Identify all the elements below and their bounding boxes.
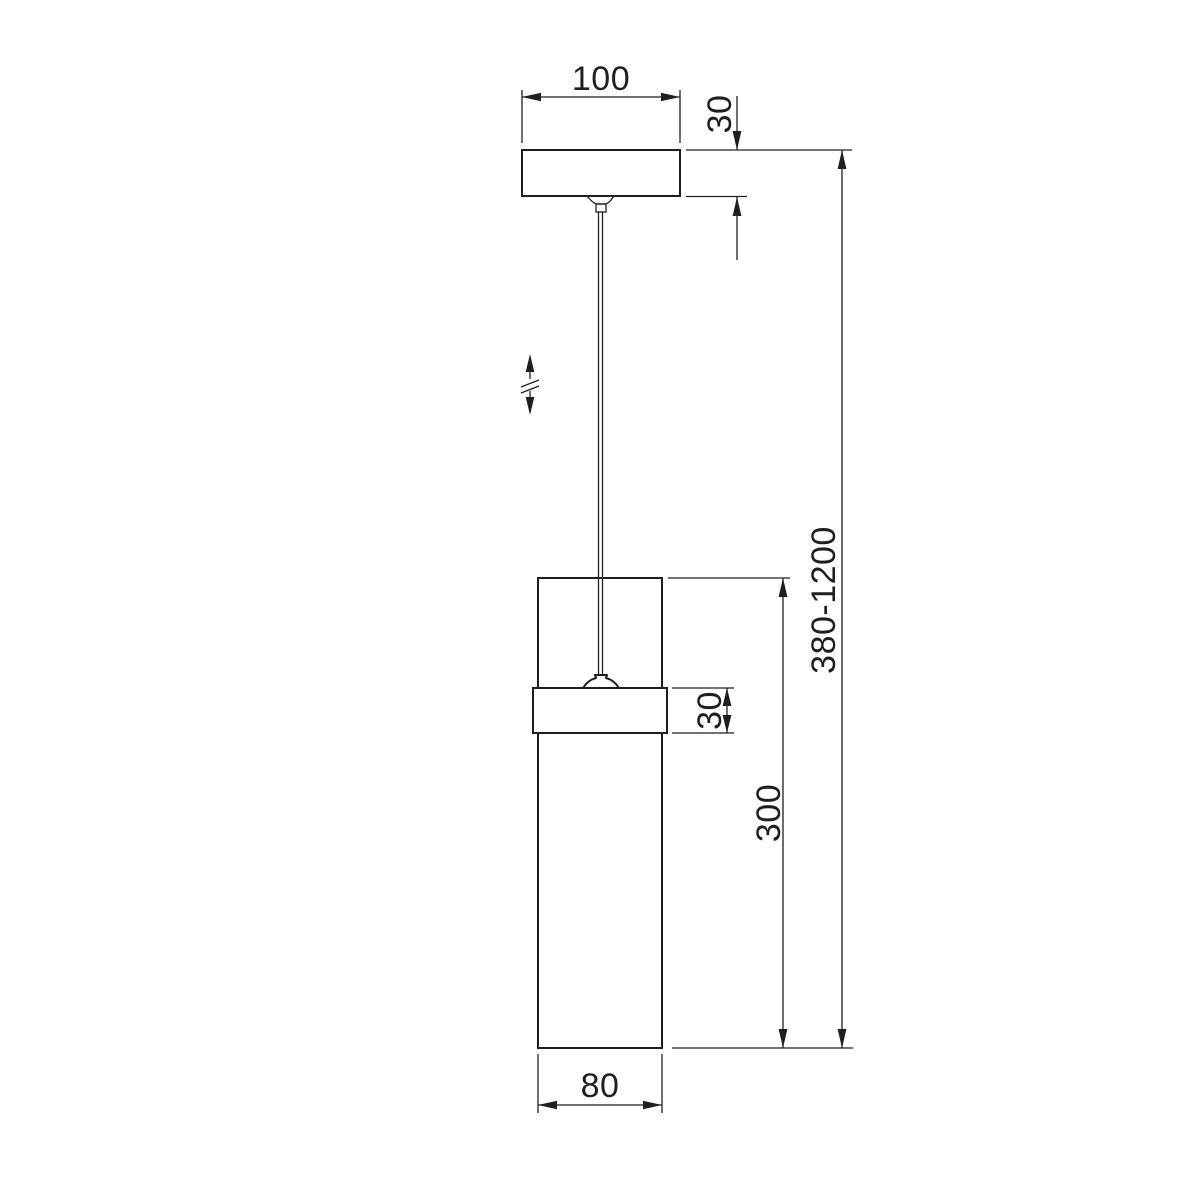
dim-label-canopy-width: 100 (572, 60, 630, 98)
glass-shade-outline (538, 578, 662, 1048)
dim-label-canopy-height: 30 (701, 95, 739, 134)
arrowhead-right-icon (661, 93, 680, 102)
arrowhead-left-icon (538, 1101, 557, 1110)
canopy-outline (522, 150, 680, 196)
arrowhead-down-icon (838, 1029, 847, 1048)
dim-overall-height: 380-1200 (672, 150, 853, 1048)
height-adjust-indicator (521, 354, 539, 415)
adjust-down-arrow-icon (526, 397, 535, 415)
adjust-break-mark-1 (521, 380, 539, 387)
dim-label-shade-height: 300 (750, 784, 788, 842)
arrowhead-up-icon (733, 197, 742, 216)
canopy-cord-connector (587, 196, 614, 204)
dim-label-shade-diameter: 80 (581, 1067, 620, 1105)
adjust-up-arrow-icon (526, 354, 535, 372)
canopy-cord-ferrule (596, 204, 606, 212)
pendant-lamp-dimension-drawing: 100 30 380-1200 30 (0, 0, 1200, 1200)
arrowhead-down-icon (779, 1029, 788, 1048)
suspension-cord (599, 212, 603, 676)
arrowhead-up-icon (779, 578, 788, 597)
drawing-canvas: 100 30 380-1200 30 (0, 0, 1200, 1200)
lamp-holder-band (533, 688, 667, 733)
dim-label-holder-height: 30 (691, 691, 729, 730)
arrowhead-right-icon (643, 1101, 662, 1110)
arrowhead-left-icon (522, 93, 541, 102)
dim-canopy-height: 30 (686, 95, 852, 260)
arrowhead-up-icon (838, 150, 847, 169)
dim-shade-height: 300 (668, 578, 790, 1048)
dim-label-overall-height: 380-1200 (805, 526, 843, 674)
dim-holder-height: 30 (672, 688, 734, 733)
dim-canopy-width: 100 (522, 60, 680, 143)
shade-cord-connector (583, 675, 619, 688)
dim-shade-diameter: 80 (538, 1054, 662, 1113)
